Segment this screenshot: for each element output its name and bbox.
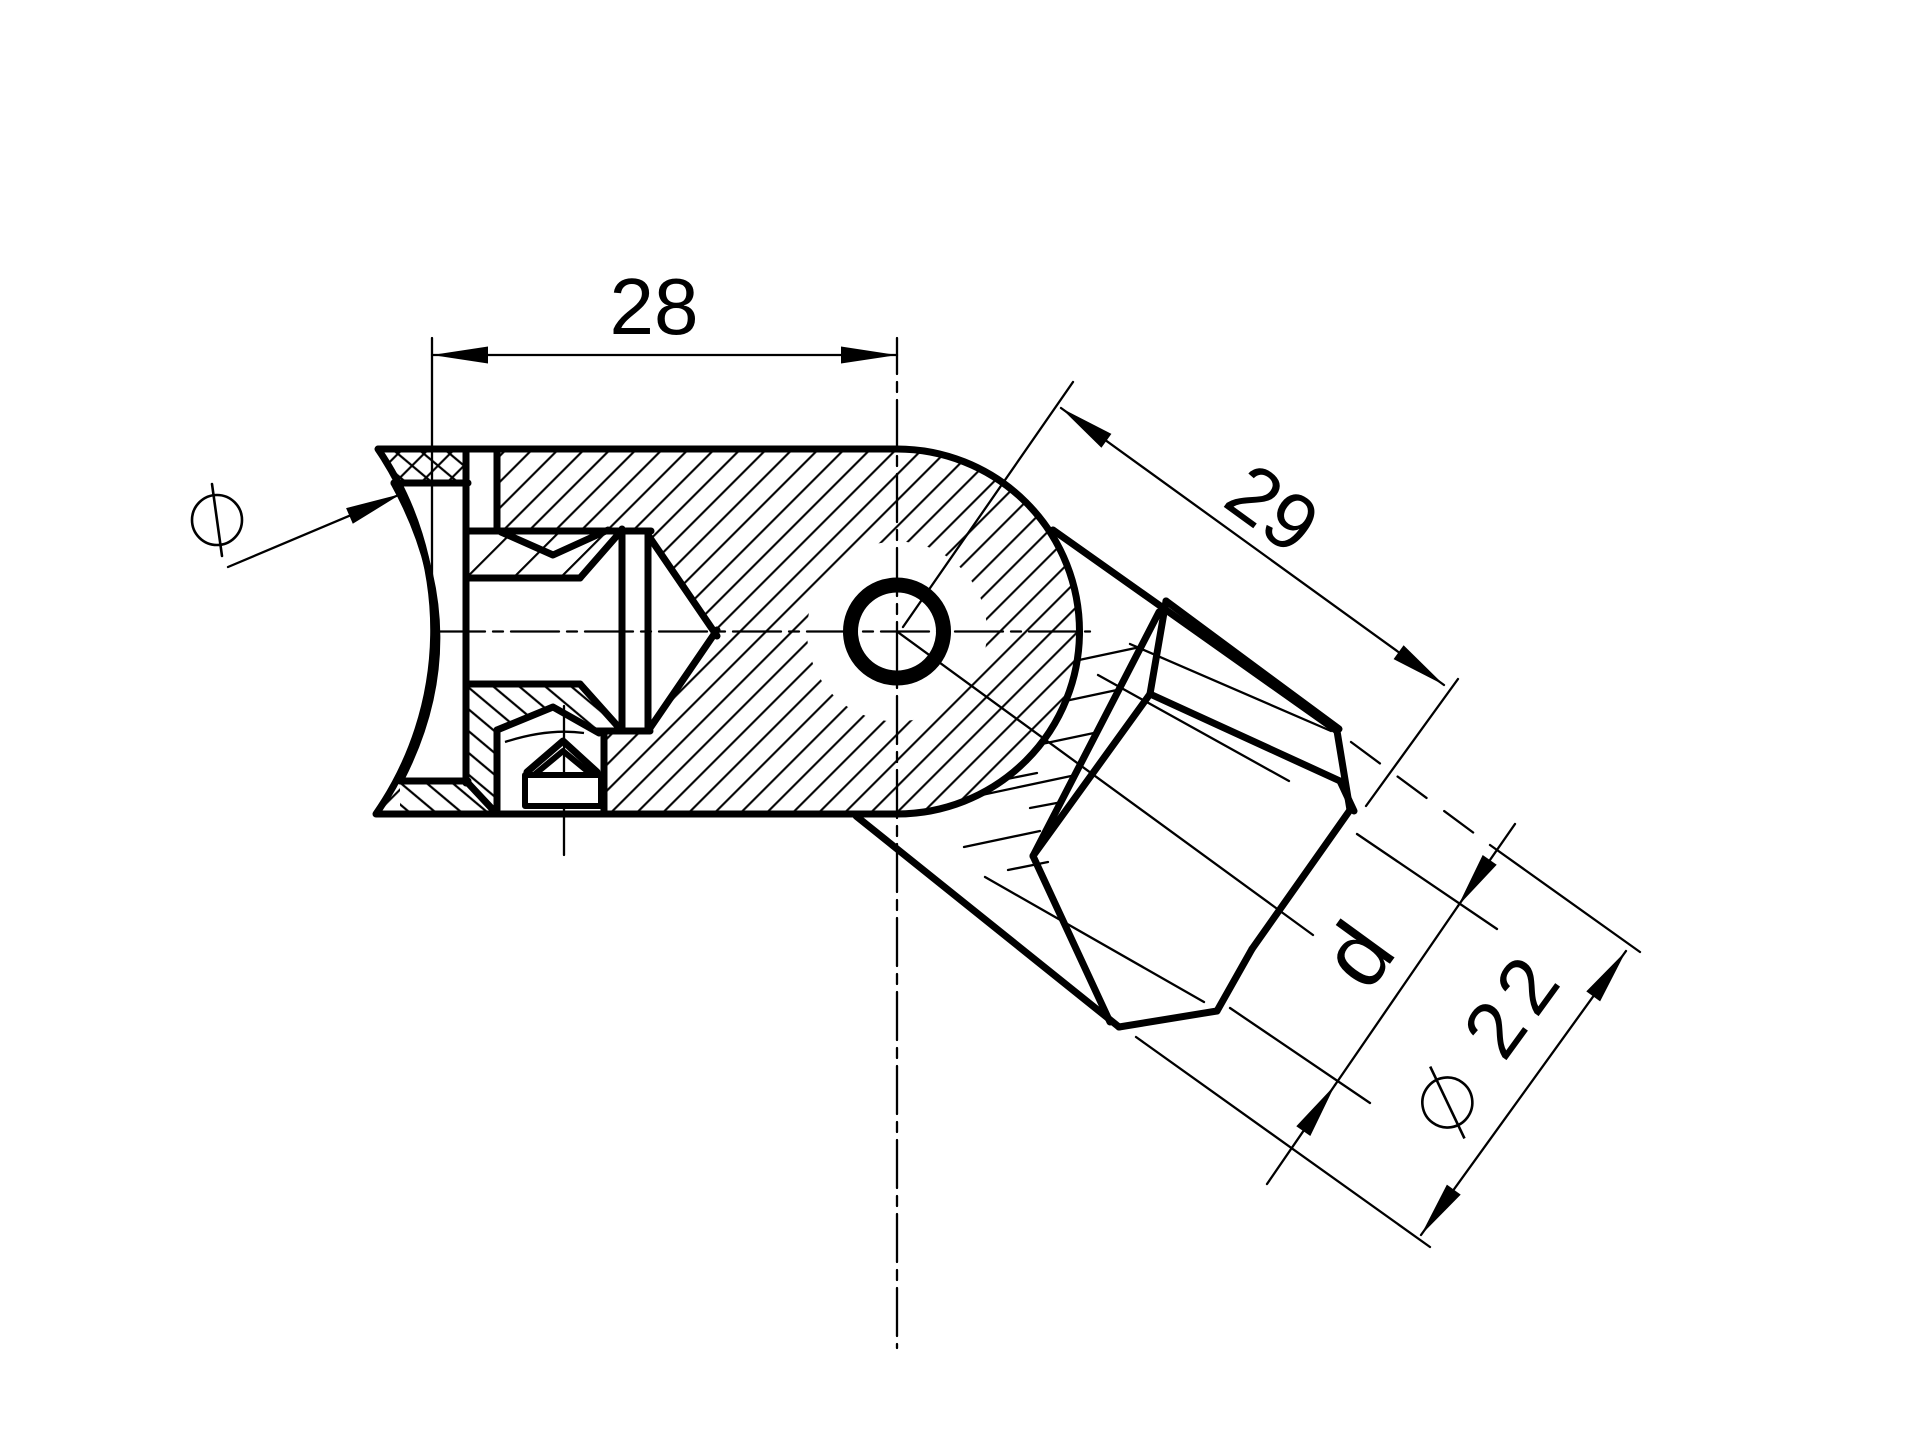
svg-text:28: 28 <box>610 262 699 351</box>
